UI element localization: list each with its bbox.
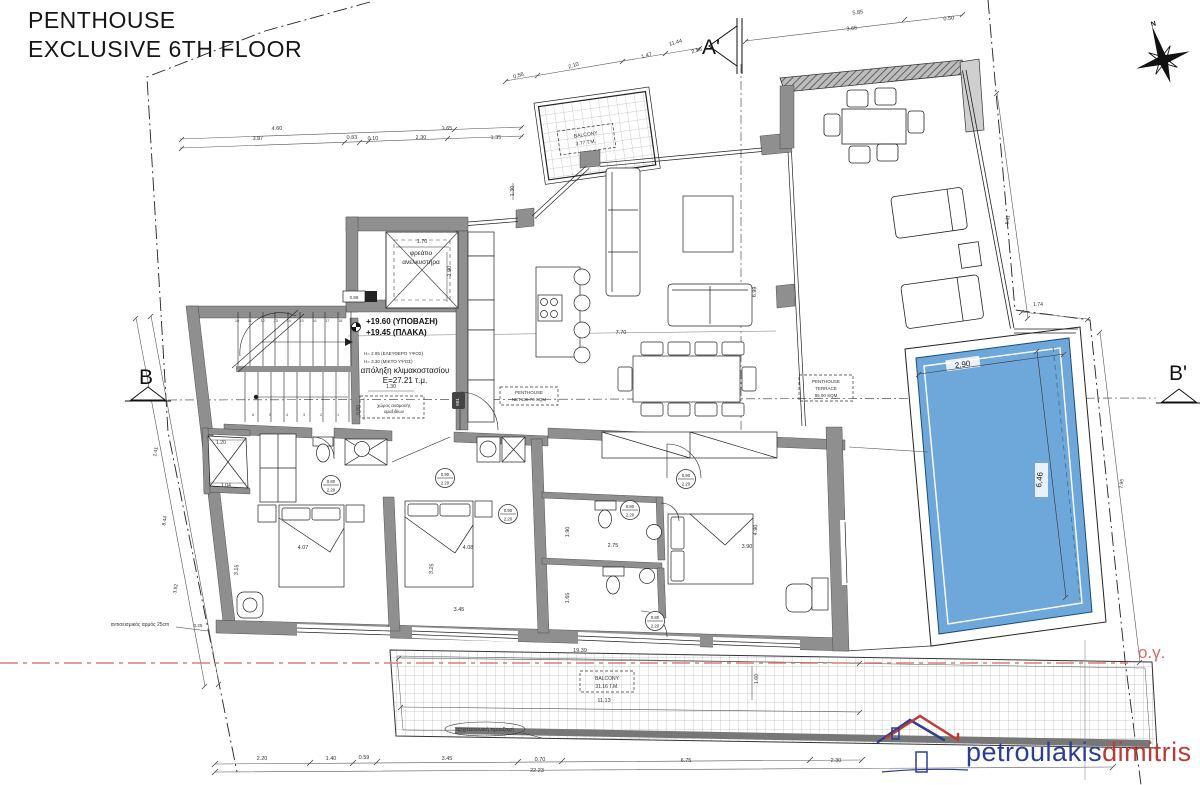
annotation-text: 2.20	[257, 756, 268, 762]
door-width-value: 0.90	[441, 472, 450, 477]
door-width-value: 0.80	[327, 479, 336, 484]
stair-number: 5	[269, 413, 271, 417]
annotation-text: 1.74	[1033, 302, 1043, 308]
pool-water	[916, 338, 1092, 634]
annotation-text: αντισεισμικός αρμός 25cm	[111, 621, 169, 628]
annotation-text: 3.25	[429, 563, 436, 574]
annotation-text: H= 3.30 (ΜΙΚΤΟ ΥΨΟΣ)	[364, 359, 413, 364]
section-label-b: B	[139, 366, 153, 389]
annotation-text: 2.30	[416, 135, 427, 141]
seismic-shaft	[208, 436, 248, 488]
annotation-text: 11.13	[597, 698, 610, 704]
door-height-value: 2.20	[441, 481, 450, 486]
annotation-text: απόληξη κλιμακοστασίου	[361, 366, 450, 375]
annotation-text: 1.30	[510, 186, 516, 197]
logo-house-icon	[872, 708, 972, 780]
floor-plan-page: A' B B' 0.562.101.4711.442.565.853.660.5…	[0, 0, 1200, 785]
annotation-text: ανελκυστήρα	[402, 259, 440, 266]
annotation-text: 7.70	[616, 330, 627, 336]
annotation-text: 1.35	[491, 135, 502, 141]
annotation-text: 3.15	[234, 564, 241, 575]
annotation-text: 2.30	[831, 758, 842, 764]
annotation-text: 3.87	[253, 136, 264, 142]
section-label-b2: B'	[1169, 362, 1187, 385]
building-line-label: ο.γ.	[1138, 643, 1165, 663]
stair-number: 18	[338, 319, 342, 323]
annotation-text: 6,46	[1034, 471, 1045, 488]
annotation-text: 1.60	[754, 674, 760, 684]
door-height-value: 2.20	[651, 624, 660, 629]
section-label-a: A'	[702, 36, 720, 59]
annotation-text: 1.20	[216, 440, 226, 446]
annotation-text: 0.83	[347, 135, 358, 141]
annotation-text: 4.08	[463, 545, 474, 551]
swimming-pool	[905, 327, 1106, 646]
annotation-text: 3.90	[742, 544, 753, 550]
dining-table	[633, 356, 740, 402]
annotation-text: 3.45	[454, 607, 465, 613]
stair-number: 2	[320, 413, 322, 417]
annotation-text: TERRACE	[815, 386, 837, 391]
annotation-text: 1.40	[326, 756, 337, 762]
stair-number: 16	[312, 319, 316, 323]
door-width-value: 0.80	[651, 615, 660, 620]
door-height-value: 2.20	[682, 482, 691, 487]
logo-text: petroulakisdimitris	[966, 739, 1192, 780]
floor-plan-canvas: A' B B' 0.562.101.4711.442.565.853.660.5…	[0, 0, 1200, 785]
annotation-text: 22.23	[530, 768, 544, 774]
wardrobe	[602, 432, 777, 458]
annotation-text: BALCONY	[595, 676, 620, 682]
annotation-text: 0.80	[356, 405, 362, 415]
door-width-value: 0.80	[626, 504, 635, 509]
annotation-text: PENTHOUSE	[515, 390, 543, 395]
annotation-text: PENTHOUSE	[812, 379, 840, 384]
annotation-text: 501	[455, 398, 460, 406]
annotation-text: 0.10	[368, 136, 379, 142]
stair-number: 1	[337, 413, 339, 417]
annotation-text: 4.07	[298, 545, 309, 551]
door-height-value: 2.20	[626, 513, 635, 518]
annotation-text: 6.99	[752, 287, 758, 298]
annotation-text: 6.75	[681, 758, 692, 764]
door-height-value: 2.20	[504, 517, 513, 522]
stair-number: 12	[261, 319, 265, 323]
company-logo: petroulakisdimitris	[872, 708, 1192, 780]
stair-number: 11	[248, 319, 252, 323]
annotation-text: 5.11	[1004, 215, 1011, 225]
annotation-text: χώρος αναμονής	[377, 402, 412, 408]
stair-number: 6	[252, 413, 254, 417]
drawing-title: PENTHOUSE EXCLUSIVE 6TH FLOOR	[28, 6, 302, 64]
stair-number: 17	[325, 319, 329, 323]
door-height-value: 2.20	[327, 488, 336, 493]
stair-number: 10	[235, 319, 239, 323]
annotation-text: 0.89	[350, 295, 359, 300]
annotation-text: 0.59	[359, 755, 370, 761]
annotation-text: φρεάτιο	[410, 249, 433, 257]
door-width-value: 0.90	[504, 508, 513, 513]
annotation-text: 85.00 SQM	[815, 393, 838, 398]
annotation-text: +19.45 (ΠΛΑΚΑ)	[366, 328, 427, 337]
stair-number: 14	[286, 319, 290, 323]
annotation-text: NET136.70 SQM	[512, 397, 547, 402]
stair-number: 4	[286, 413, 288, 417]
annotation-text: E=27.21 τ.μ.	[383, 376, 427, 385]
stair-number: 15	[299, 319, 303, 323]
annotation-text: 19.39	[573, 648, 587, 654]
annotation-text: 1.65	[565, 593, 571, 604]
annotation-text: 7.95	[1119, 479, 1126, 490]
annotation-text: 4.60	[272, 126, 283, 132]
annotation-text: 1.90	[565, 527, 571, 538]
annotation-text: 1.90	[447, 266, 453, 277]
annotation-text: 3.45	[442, 756, 453, 762]
annotation-text: 31.16 T.M.	[595, 684, 618, 690]
stair-number: 3	[303, 413, 305, 417]
annotation-text: 1.70	[417, 239, 428, 245]
logo-word-1: petroulakis	[966, 737, 1102, 767]
annotation-text: 4.90	[753, 525, 759, 536]
annotation-text: 3.65	[442, 126, 453, 132]
title-line-2: EXCLUSIVE 6TH FLOOR	[28, 35, 302, 64]
annotation-text: +19.60 (ΥΠΟΒΑΣΗ)	[366, 317, 438, 326]
logo-word-2: dimitris	[1102, 737, 1192, 767]
annotation-text: αρχιτεκτονική προεξοχή	[456, 726, 514, 733]
title-line-1: PENTHOUSE	[28, 6, 302, 35]
annotation-text: H= 2.95 (ΕΛΕΥΘΕΡΟ ΥΨΟΣ)	[364, 351, 424, 356]
door-width-value: 0.90	[682, 473, 691, 478]
annotation-text: 2.75	[608, 543, 619, 549]
stair-number: 13	[274, 319, 278, 323]
annotation-text: 0.70	[535, 757, 546, 763]
annotation-text: 1.04	[221, 483, 231, 489]
annotation-text: 0.25	[194, 623, 203, 628]
annotation-text: αμαξιδίων	[384, 409, 405, 414]
